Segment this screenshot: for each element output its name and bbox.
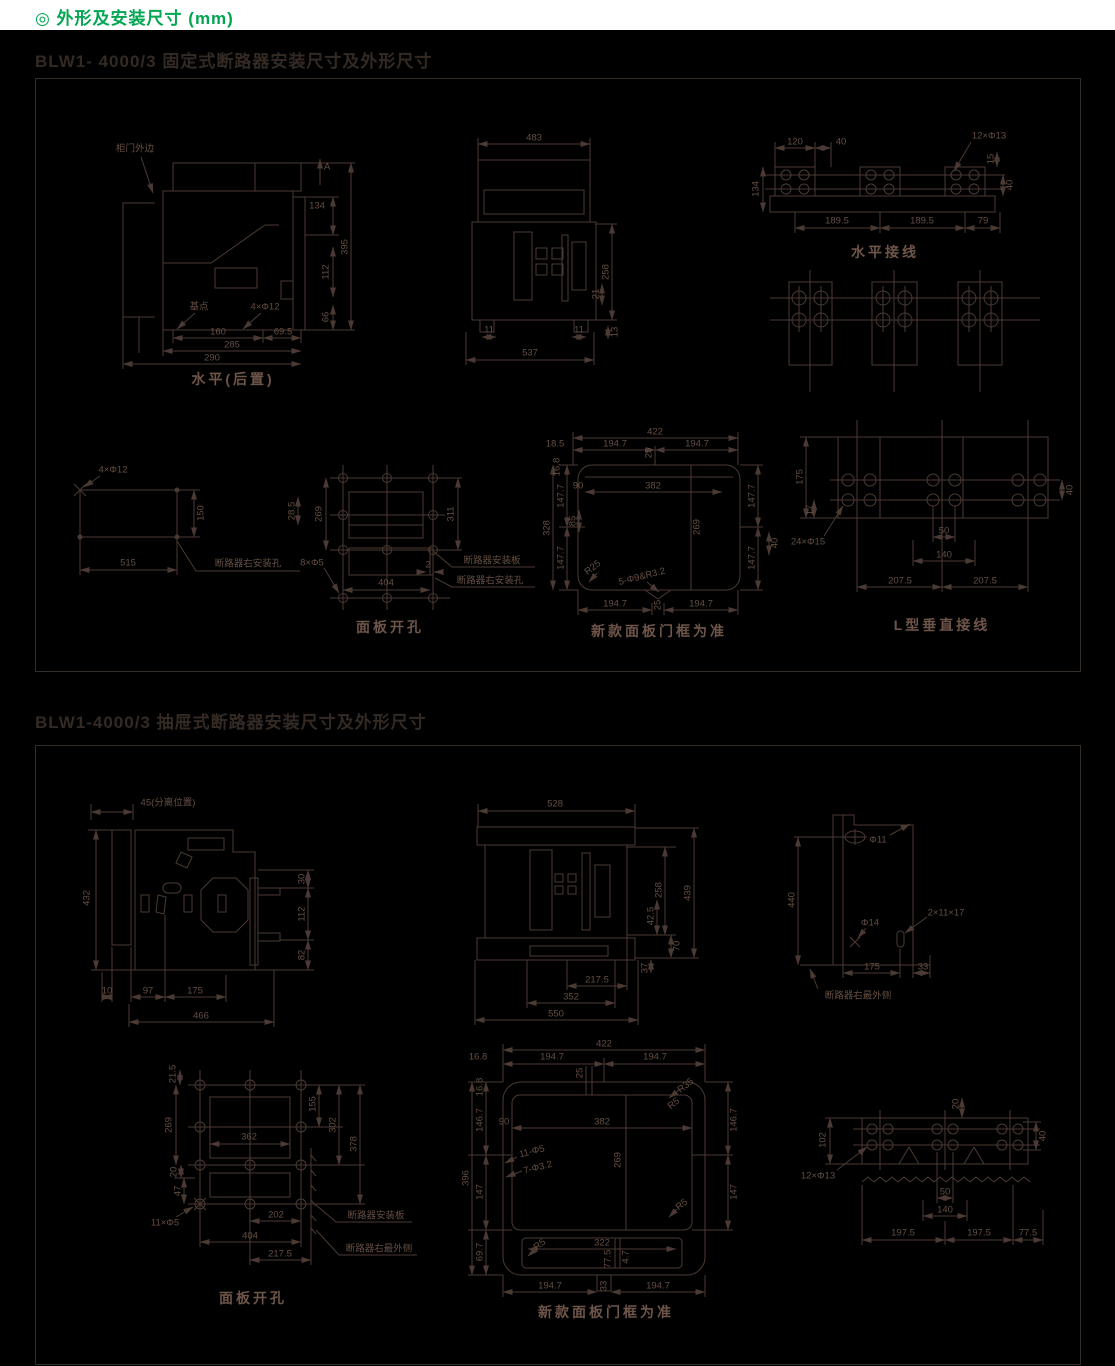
- dim-label: 207.5: [973, 576, 997, 586]
- dim-label: 112: [297, 906, 307, 921]
- dim-label: 146.7: [475, 1108, 485, 1132]
- dim-label: 175: [864, 962, 880, 972]
- dim-label: 194.7: [540, 1052, 564, 1062]
- section-title-drawer: BLW1-4000/3 抽屉式断路器安装尺寸及外形尺寸: [35, 708, 427, 733]
- dim-label: 4.7: [621, 1250, 631, 1263]
- horizontal-connection-linework: [757, 128, 1115, 263]
- dim-label: 140: [937, 1205, 953, 1215]
- dim-label: 160: [210, 327, 226, 337]
- l-type-vertical-connection-view: 175 17 24×Φ15 40 50 140 207.5 207.5 L型垂直…: [790, 420, 1115, 650]
- dim-label: 328: [542, 520, 552, 536]
- dim-label: 150: [196, 505, 206, 521]
- dim-label: 42.5: [646, 907, 656, 926]
- dim-label: 11: [574, 325, 584, 335]
- page-header-bar: ◎ 外形及安装尺寸 (mm): [0, 0, 1115, 30]
- dim-label: 537: [522, 348, 538, 358]
- dim-label: 207.5: [888, 576, 912, 586]
- dim-label: 466: [193, 1011, 209, 1021]
- dim-label: 440: [787, 892, 797, 908]
- dim-label: 197.5: [967, 1228, 991, 1238]
- section-title-fixed: BLW1- 4000/3 固定式断路器安装尺寸及外形尺寸: [35, 47, 432, 72]
- dim-label: 396: [461, 1170, 471, 1186]
- dim-label: 147.7: [556, 546, 566, 570]
- dim-label: 439: [683, 885, 693, 901]
- door-frame-fixed-linework: [545, 420, 780, 645]
- dim-label: 134: [309, 201, 325, 211]
- right-mounting-holes-linework: [58, 440, 313, 605]
- dim-label: 147.7: [747, 484, 757, 508]
- dim-label: 189.5: [825, 216, 849, 226]
- dim-label: 66: [321, 312, 331, 323]
- dim-label: 311: [446, 506, 456, 521]
- dim-label: 16.8: [475, 1078, 485, 1097]
- dim-label: 147: [475, 1184, 485, 1200]
- page-title: ◎ 外形及安装尺寸 (mm): [35, 4, 234, 29]
- dim-label: 50: [939, 526, 950, 536]
- dim-label: 194.7: [689, 599, 713, 609]
- dim-label: 432: [82, 890, 92, 906]
- dim-label: 40: [1005, 180, 1015, 191]
- dim-label: 269: [692, 519, 702, 535]
- dim-label: 70: [672, 941, 682, 952]
- dim-label: 194.7: [643, 1052, 667, 1062]
- slot-label: 2×11×17: [928, 908, 965, 918]
- dim-label: 28.5: [287, 502, 297, 521]
- dim-label: 50: [940, 1187, 951, 1197]
- dim-label: A: [324, 162, 330, 172]
- dim-label: Φ14: [861, 918, 879, 928]
- dim-label: 120: [787, 137, 803, 147]
- dim-label: 352: [563, 992, 579, 1002]
- dim-label: 302: [328, 1117, 338, 1133]
- dim-label: 40: [1038, 1131, 1048, 1142]
- dim-label: 13: [610, 327, 620, 338]
- dim-label: 16.8: [552, 458, 562, 477]
- panel-cutout-drawer-view: 21.5 269 20 47 362 155 302 378 202 404 2…: [150, 1040, 460, 1325]
- note-label: 断路器右最外侧: [825, 991, 892, 1001]
- catalog-page: ◎ 外形及安装尺寸 (mm) BLW1- 4000/3 固定式断路器安装尺寸及外…: [0, 0, 1115, 1366]
- panel-cutout-drawer-linework: [150, 1040, 460, 1325]
- dim-label: 483: [526, 133, 542, 143]
- drawer-front-view-linework: [455, 790, 715, 1040]
- dim-label: 69.7: [475, 1243, 485, 1262]
- dim-label: 422: [596, 1039, 612, 1049]
- holes-label: 12×Φ13: [972, 131, 1006, 141]
- dim-label: 269: [164, 1117, 174, 1133]
- dim-label: 175: [187, 986, 203, 996]
- drawing-caption: 面板开孔: [356, 617, 424, 637]
- holes-label: 11×Φ5: [151, 1218, 179, 1228]
- dim-label: 258: [601, 264, 611, 280]
- dim-label: 40: [1065, 485, 1075, 496]
- dim-label: 217.5: [268, 1249, 292, 1259]
- dim-label: 147.7: [747, 546, 757, 570]
- dim-label: 550: [548, 1009, 564, 1019]
- note-label: 断路器右安装孔: [457, 576, 524, 586]
- dim-label: 290: [204, 353, 220, 363]
- note-label: 断路器右最外侧: [346, 1244, 413, 1254]
- dim-label: 147.7: [556, 484, 566, 508]
- dim-label: 258: [654, 882, 664, 898]
- dim-label: 147: [729, 1184, 739, 1200]
- drawing-caption: 新款面板门框为准: [538, 1302, 674, 1322]
- dim-label: 77.5: [1019, 1228, 1038, 1238]
- dim-label: 79: [978, 216, 989, 226]
- dim-label: 21.5: [168, 1065, 178, 1084]
- dim-label: 17: [805, 505, 815, 516]
- dim-label: 202: [268, 1210, 284, 1220]
- dim-label: 45(分离位置): [141, 798, 196, 808]
- dim-label: 194.7: [646, 1281, 670, 1291]
- dim-label: 25: [575, 1068, 585, 1079]
- dim-label: 20: [169, 1167, 179, 1178]
- dim-label: 395: [340, 239, 350, 255]
- dim-label: 382: [645, 481, 661, 491]
- dim-label: 362: [241, 1132, 257, 1142]
- dim-label: 515: [120, 558, 136, 568]
- dim-label: 146.7: [729, 1108, 739, 1132]
- dim-label: 269: [314, 506, 324, 522]
- drawer-side-view: 45(分离位置) 432 30 112 82 10 97 175 466: [78, 790, 343, 1045]
- dim-label: 134: [751, 181, 761, 197]
- drawer-front-view: 528 258 439 42.5 70 37 217.5 352 550: [455, 790, 715, 1040]
- panel-cutout-fixed-linework: [290, 435, 540, 640]
- dim-label: 194.7: [603, 439, 627, 449]
- dim-label: 90: [573, 481, 584, 491]
- dim-label: 269: [613, 1152, 623, 1168]
- dim-label: 20: [951, 1099, 961, 1110]
- panel-cutout-fixed-view: 28.5 269 311 8×Φ5 404 2 断路器安装板 断路器右安装孔 面…: [290, 435, 540, 640]
- dim-label: Φ11: [869, 835, 886, 845]
- dim-label: 25: [653, 600, 663, 611]
- dim-label: 47: [173, 1186, 183, 1197]
- dim-label: 40: [836, 137, 847, 147]
- dim-label: 528: [547, 799, 563, 809]
- dim-label: 2: [425, 560, 430, 570]
- busbar-bolt-pattern: [770, 268, 1050, 396]
- dim-label: 197.5: [891, 1228, 915, 1238]
- dim-label: 82: [297, 950, 307, 961]
- dim-label: 382: [594, 1117, 610, 1127]
- dim-label: 15: [986, 154, 996, 165]
- dim-label: 322: [594, 1238, 610, 1248]
- dim-label: 404: [378, 578, 394, 588]
- base-point-label: 基点: [189, 302, 208, 312]
- note-label: 断路器安装板: [463, 556, 520, 566]
- drawing-caption: 面板开孔: [219, 1288, 287, 1308]
- holes-label: 12×Φ13: [801, 1171, 835, 1181]
- dim-label: 404: [242, 1231, 258, 1241]
- dim-label: 194.7: [603, 599, 627, 609]
- dim-label: 217.5: [585, 975, 609, 985]
- dim-label: 155: [308, 1096, 318, 1112]
- dim-label: 40: [770, 538, 780, 549]
- holes-label: 8×Φ5: [300, 558, 324, 568]
- dim-label: 33: [918, 962, 929, 972]
- dim-label: 10: [102, 986, 113, 996]
- busbar-bolt-pattern-linework: [770, 268, 1050, 396]
- dim-label: 77.5: [603, 1250, 613, 1269]
- fixed-side-view: 柜门外边 A 134 112 66 395 基点 4×Φ12 160 69.5 …: [115, 135, 360, 387]
- dim-label: 25: [644, 448, 654, 459]
- door-frame-drawer-linework: [460, 1040, 760, 1330]
- note-label: 断路器安装板: [347, 1211, 404, 1221]
- drawing-caption: L型垂直接线: [894, 615, 991, 635]
- dim-label: 30: [297, 874, 307, 885]
- drawer-right-side-view: Φ11 440 2×11×17 Φ14 175 33 断路器右最外侧: [790, 795, 1065, 1025]
- door-frame-drawer-view: 422 194.7 194.7 16.8 25 16.8 146.7 147 3…: [460, 1040, 760, 1330]
- note-label: 断路器右安装孔: [215, 559, 282, 569]
- dim-label: 21: [591, 289, 601, 300]
- dim-label: 85: [568, 516, 578, 527]
- dim-label: 18.5: [546, 439, 565, 449]
- dim-label: 422: [647, 427, 663, 437]
- dim-label: 11: [484, 325, 494, 335]
- drawer-connection-view: 102 20 40 12×Φ13 50 140 197.5 197.5 77.5: [795, 1090, 1115, 1260]
- holes-label: 24×Φ15: [791, 537, 825, 547]
- dim-label: 33: [599, 1281, 609, 1292]
- drawing-caption: 水平接线: [851, 242, 919, 262]
- right-mounting-holes-view: 4×Φ12 150 515 断路器右安装孔: [58, 440, 313, 605]
- holes-label: 4×Φ12: [99, 465, 128, 475]
- dim-label: 194.7: [685, 439, 709, 449]
- drawing-caption: 水平(后置): [191, 369, 274, 389]
- dim-label: 112: [321, 264, 331, 279]
- dim-label: 140: [936, 550, 952, 560]
- fixed-front-view-linework: [462, 132, 652, 372]
- drawer-connection-linework: [795, 1090, 1115, 1260]
- dim-label: 97: [143, 986, 154, 996]
- door-frame-fixed-view: 422 194.7 194.7 18.5 16.8 147.7 147.7 32…: [545, 420, 780, 645]
- dim-label: 90: [499, 1117, 510, 1127]
- dim-label: 16.8: [469, 1052, 488, 1062]
- dim-label: 37: [640, 963, 650, 974]
- dim-label: 285: [224, 340, 240, 350]
- door-edge-label: 柜门外边: [116, 144, 154, 154]
- dim-label: 69.5: [274, 327, 293, 337]
- fixed-front-view: 483 258 21 13 11 11 537: [462, 132, 652, 372]
- dim-label: 194.7: [538, 1281, 562, 1291]
- dim-label: 175: [795, 469, 805, 485]
- holes-label: 4×Φ12: [251, 302, 280, 312]
- drawing-caption: 新款面板门框为准: [591, 621, 727, 641]
- dim-label: 378: [349, 1136, 359, 1152]
- horizontal-connection-view: 120 40 134 12×Φ13 15 40 189.5 189.5 79 水…: [757, 128, 1115, 263]
- dim-label: 102: [818, 1132, 828, 1148]
- dim-label: 189.5: [910, 216, 934, 226]
